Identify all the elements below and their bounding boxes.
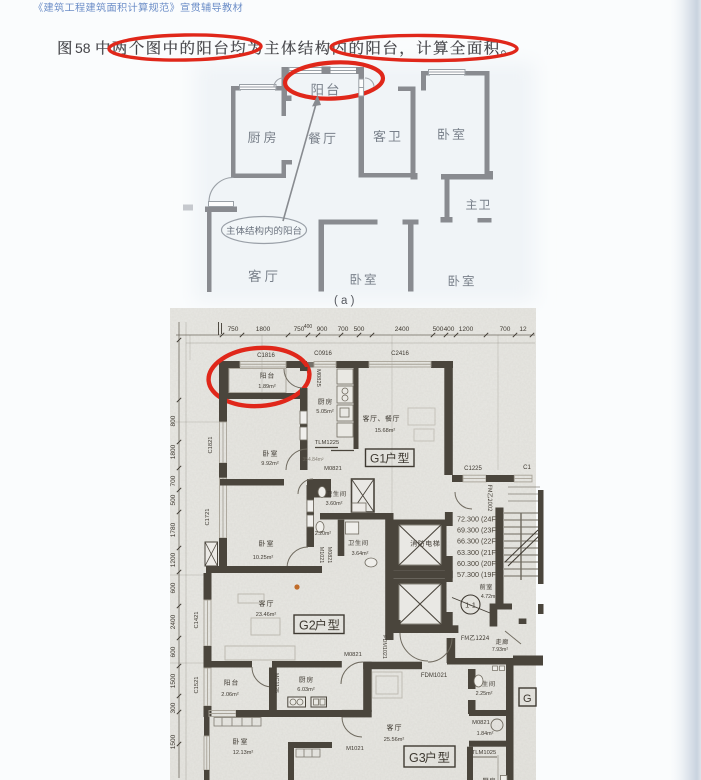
svg-text:6.03m²: 6.03m² <box>297 687 315 693</box>
svg-text:57.300 (19F: 57.300 (19F <box>457 570 496 579</box>
svg-text:66.300 (22F: 66.300 (22F <box>457 537 496 546</box>
svg-text:500: 500 <box>170 494 177 505</box>
svg-text:600: 600 <box>170 582 177 593</box>
svg-text:C1225: C1225 <box>464 466 482 472</box>
svg-text:C2416: C2416 <box>391 351 409 357</box>
svg-text:M0821: M0821 <box>326 547 332 563</box>
svg-text:1.89m²: 1.89m² <box>258 384 276 390</box>
svg-text:15.68m²: 15.68m² <box>375 428 396 434</box>
svg-text:12.13m²: 12.13m² <box>233 750 254 756</box>
svg-text:800: 800 <box>170 415 177 426</box>
svg-text:9.92m²: 9.92m² <box>261 461 279 467</box>
svg-text:1200: 1200 <box>459 326 474 333</box>
svg-text:C1721: C1721 <box>205 508 211 525</box>
svg-text:750: 750 <box>228 326 239 333</box>
svg-text:700: 700 <box>170 475 177 486</box>
svg-text:600: 600 <box>170 646 177 657</box>
svg-text:69.300 (23F: 69.300 (23F <box>457 526 496 535</box>
svg-text:G1: G1 <box>370 452 386 466</box>
svg-text:5.05m²: 5.05m² <box>316 409 334 415</box>
svg-text:12: 12 <box>519 326 527 333</box>
svg-text:1200: 1200 <box>170 552 177 567</box>
svg-text:4.72m²: 4.72m² <box>481 594 497 600</box>
svg-text:2400: 2400 <box>395 326 410 333</box>
svg-text:C1421: C1421 <box>194 611 200 628</box>
svg-text:500: 500 <box>354 326 365 333</box>
svg-text:M0821: M0821 <box>472 720 490 726</box>
svg-text:M0825: M0825 <box>315 369 321 387</box>
svg-text:2400: 2400 <box>170 614 177 629</box>
svg-text:C1821: C1821 <box>208 436 214 453</box>
svg-text:M1021: M1021 <box>318 547 324 563</box>
svg-text:3.60m²: 3.60m² <box>326 501 343 507</box>
svg-text:400: 400 <box>304 324 313 330</box>
svg-text:7.93m²: 7.93m² <box>492 647 508 653</box>
svg-text:C1816: C1816 <box>257 353 275 359</box>
svg-text:354.84m²: 354.84m² <box>302 457 323 463</box>
svg-text:400: 400 <box>444 326 455 333</box>
svg-text:1500: 1500 <box>170 734 177 749</box>
svg-text:500: 500 <box>433 326 444 333</box>
svg-text:C1521: C1521 <box>194 676 200 693</box>
svg-text:23.46m²: 23.46m² <box>256 612 277 618</box>
svg-text:TLM1225: TLM1225 <box>315 440 340 446</box>
svg-text:3.64m²: 3.64m² <box>352 551 369 557</box>
svg-text:C0916: C0916 <box>314 351 332 357</box>
svg-text:1800: 1800 <box>170 444 177 459</box>
svg-text:2.20m²: 2.20m² <box>315 531 331 537</box>
svg-text:G2: G2 <box>299 619 316 633</box>
svg-text:FDM1021: FDM1021 <box>381 635 387 659</box>
svg-text:M0821: M0821 <box>324 466 342 472</box>
svg-text:25.56m²: 25.56m² <box>384 737 405 743</box>
svg-text:10.25m²: 10.25m² <box>253 555 274 561</box>
svg-text:58: 58 <box>75 40 91 56</box>
svg-text:1.84m²: 1.84m² <box>477 731 494 737</box>
svg-text:1800: 1800 <box>256 326 271 333</box>
svg-text:G3: G3 <box>409 751 426 765</box>
svg-text:63.300 (21F: 63.300 (21F <box>457 548 496 557</box>
svg-text:M0821: M0821 <box>344 652 362 658</box>
svg-text:MC1125: MC1125 <box>273 673 279 693</box>
svg-text:300: 300 <box>170 702 177 713</box>
svg-text:1500: 1500 <box>170 673 177 688</box>
svg-text:700: 700 <box>338 326 349 333</box>
svg-text:TLM1025: TLM1025 <box>472 750 497 756</box>
svg-text:72.300 (24F: 72.300 (24F <box>457 515 496 524</box>
svg-text:( a ): ( a ) <box>334 295 355 307</box>
svg-text:FDM1021: FDM1021 <box>421 673 448 679</box>
svg-text:1780: 1780 <box>170 522 177 537</box>
svg-text:60.300 (20F: 60.300 (20F <box>457 559 496 568</box>
svg-text:M1021: M1021 <box>346 746 364 752</box>
svg-text:C1: C1 <box>523 465 531 471</box>
svg-text:2.25m²: 2.25m² <box>476 691 493 697</box>
svg-text:900: 900 <box>317 326 328 333</box>
svg-text:700: 700 <box>500 326 511 333</box>
svg-text:1-1: 1-1 <box>465 601 476 610</box>
svg-text:2.06m²: 2.06m² <box>221 692 239 698</box>
svg-text:G: G <box>523 693 532 705</box>
